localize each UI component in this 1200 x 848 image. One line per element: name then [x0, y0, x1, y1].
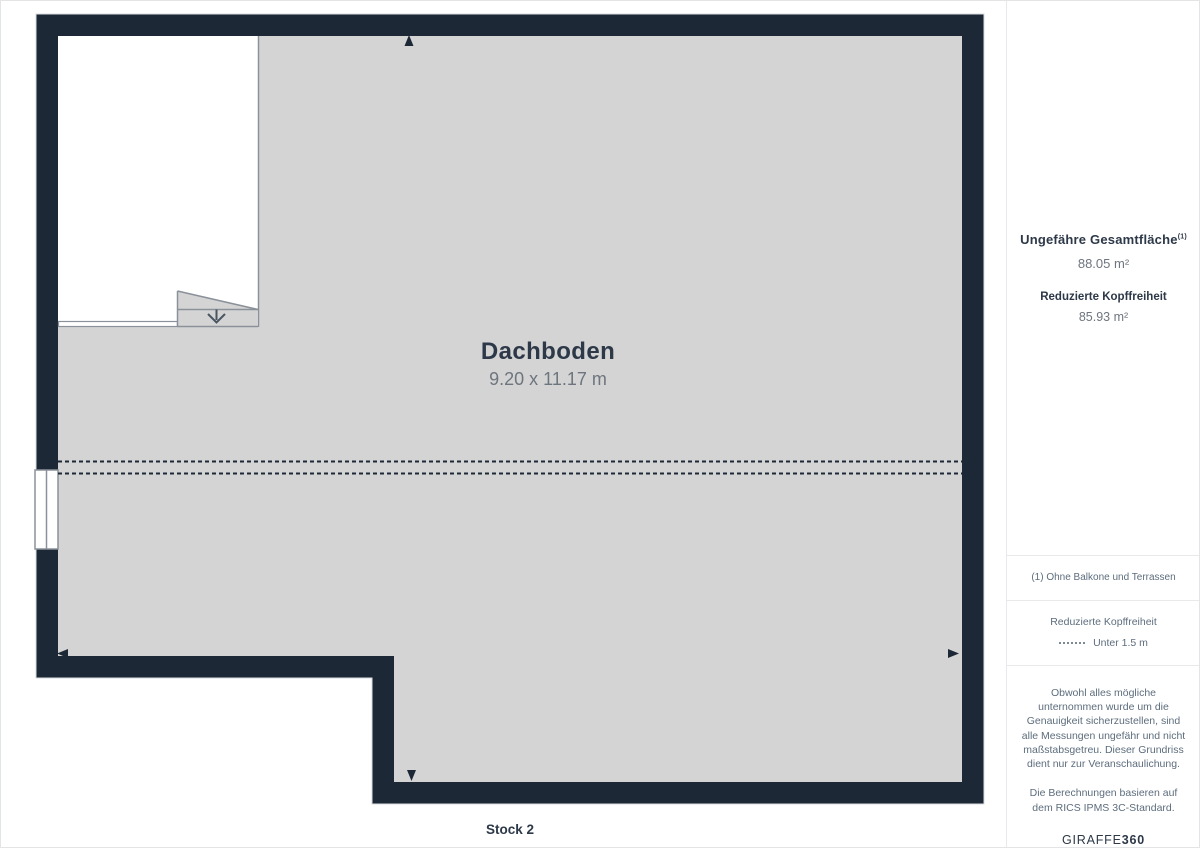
area-summary-section: Ungefähre Gesamtfläche(1) 88.05 m² Reduz… [1007, 1, 1200, 556]
stairwell-void [58, 36, 258, 322]
room-name: Dachboden [481, 338, 615, 365]
legend-item-label: Unter 1.5 m [1093, 637, 1148, 649]
info-sidebar: Ungefähre Gesamtfläche(1) 88.05 m² Reduz… [1006, 1, 1200, 847]
floor-label: Stock 2 [486, 822, 534, 837]
total-area-footnote-ref: (1) [1178, 234, 1187, 241]
total-area-label-text: Ungefähre Gesamtfläche [1020, 232, 1178, 247]
total-area-label: Ungefähre Gesamtfläche(1) [1020, 232, 1187, 247]
reduced-headroom-dash-swatch [1059, 642, 1085, 644]
total-area-value: 88.05 m² [1078, 256, 1129, 271]
legend-title: Reduzierte Kopffreiheit [1050, 616, 1157, 628]
giraffe360-logo-suffix: 360 [1122, 833, 1145, 847]
floor-plan: Dachboden 9.20 x 11.17 m Stock 2 [1, 1, 1006, 848]
footnote-section: (1) Ohne Balkone und Terrassen [1007, 556, 1200, 601]
footnote-text: (1) Ohne Balkone und Terrassen [1031, 572, 1175, 583]
disclaimer-text-1: Obwohl alles mögliche unternommen wurde … [1020, 686, 1188, 772]
legend-row: Unter 1.5 m [1059, 637, 1148, 649]
disclaimer-text-2: Die Berechnungen basieren auf dem RICS I… [1020, 786, 1188, 815]
reduced-headroom-value: 85.93 m² [1079, 310, 1128, 324]
window [35, 470, 58, 549]
stairwell-bottom-wall [59, 322, 178, 327]
giraffe360-logo-main: GIRAFFE [1062, 833, 1122, 847]
floorplan-page: Dachboden 9.20 x 11.17 m Stock 2 Ungefäh… [0, 0, 1200, 848]
giraffe360-logo: GIRAFFE360 [1062, 833, 1145, 847]
room-dimensions: 9.20 x 11.17 m [489, 369, 607, 389]
reduced-headroom-label: Reduzierte Kopffreiheit [1040, 291, 1167, 303]
legend-section: Reduzierte Kopffreiheit Unter 1.5 m [1007, 601, 1200, 666]
floor-plan-svg: Dachboden 9.20 x 11.17 m Stock 2 [1, 1, 1006, 848]
disclaimer-section: Obwohl alles mögliche unternommen wurde … [1007, 666, 1200, 847]
